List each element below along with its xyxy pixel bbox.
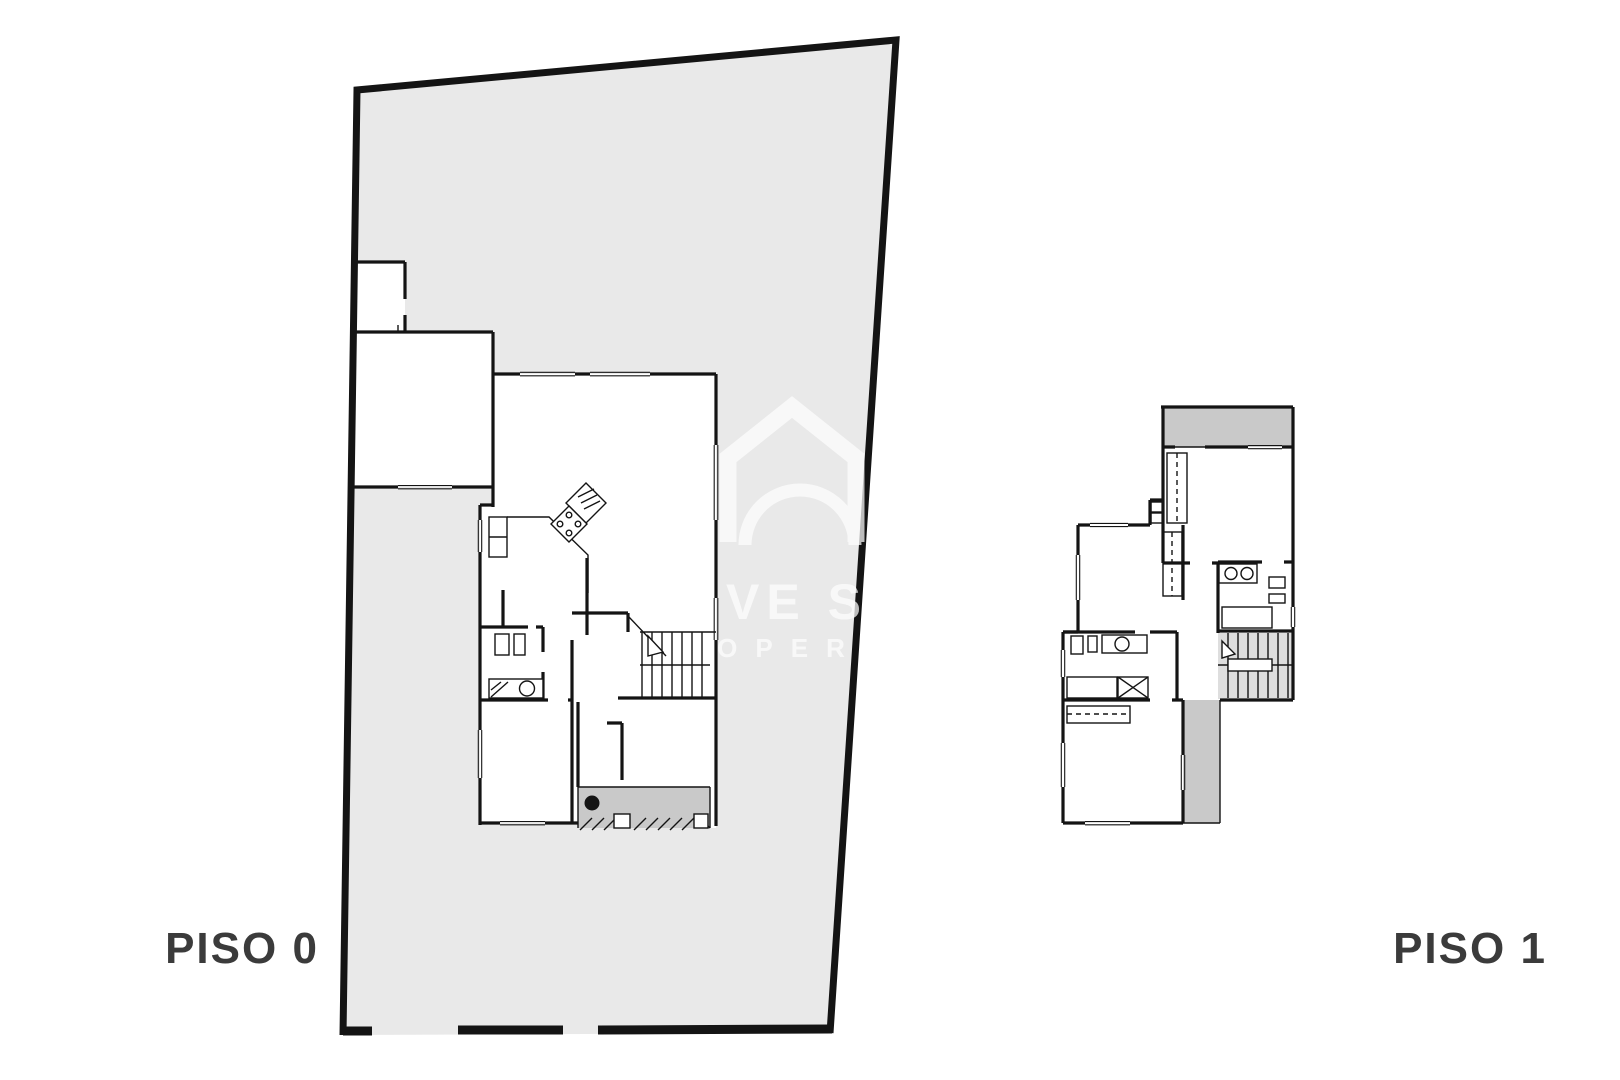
- watermark-text-line1: VE S: [726, 574, 868, 630]
- piso0-label: PISO 0: [165, 924, 319, 973]
- piso1-label: PISO 1: [1393, 924, 1547, 973]
- toilet-icon: [514, 634, 525, 655]
- piso1-plan: PISO 1: [1061, 407, 1547, 973]
- piso0-plan: PISO 0: [165, 40, 896, 1035]
- washer-icon: [495, 634, 509, 655]
- balcony-top: [1163, 407, 1293, 447]
- annex-courtyard: [352, 262, 405, 332]
- entrance-porch: [578, 787, 710, 830]
- porch-column-dot: [585, 796, 600, 811]
- closet-above-stairs: [1222, 607, 1272, 628]
- porch-pillar-base: [614, 814, 630, 828]
- floor-plan-page: PISO 0 VE S OPER: [0, 0, 1620, 1080]
- watermark-text-line2: OPER: [717, 633, 863, 663]
- main-house-footprint: [480, 374, 716, 828]
- staircase-piso1: [1218, 633, 1293, 699]
- porch-pillar-base: [694, 814, 708, 828]
- stair-landing: [1228, 659, 1272, 671]
- terrace-bottom: [1183, 700, 1220, 823]
- garage-room: [352, 332, 493, 487]
- floor-plan-drawing: PISO 0 VE S OPER: [0, 0, 1620, 1080]
